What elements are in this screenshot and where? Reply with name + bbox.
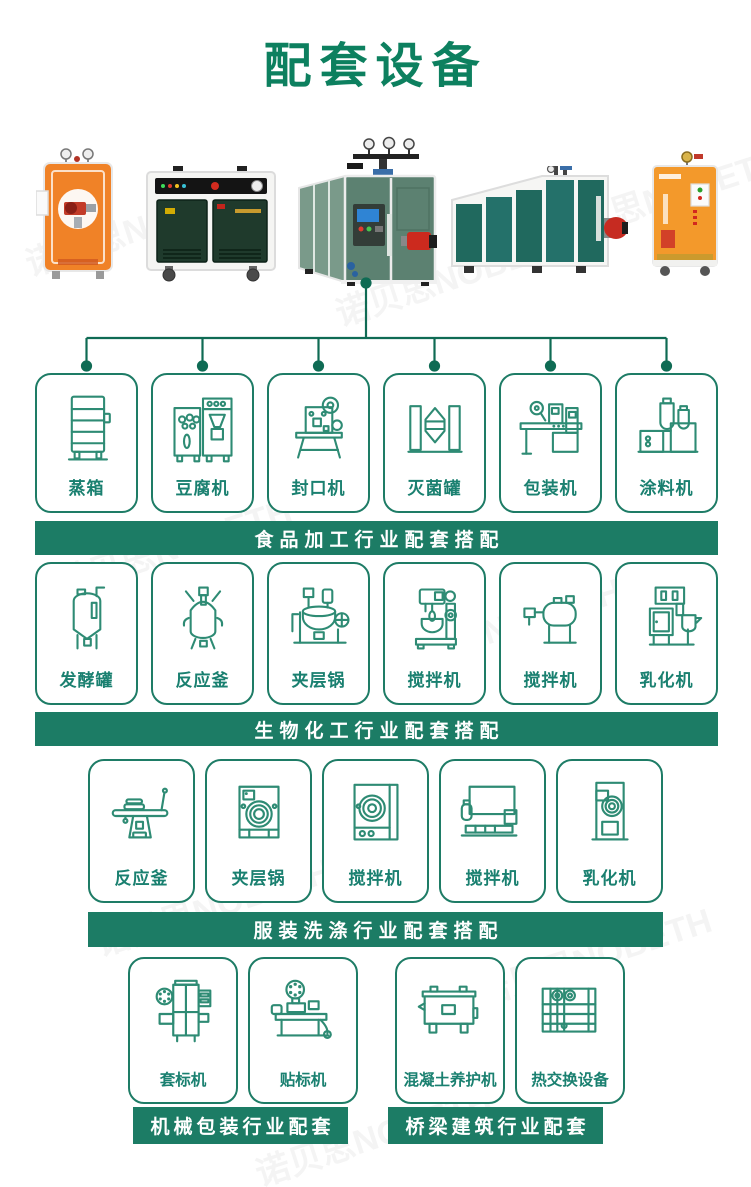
equipment-label: 搅拌机 — [349, 864, 403, 889]
orange-electric-steam-boiler-photo — [647, 150, 723, 276]
equipment-label: 搅拌机 — [408, 666, 462, 691]
equipment-card: 贴标机 — [248, 957, 358, 1104]
equipment-card: 套标机 — [128, 957, 238, 1104]
horizontal-steam-boiler-photo — [446, 166, 628, 282]
horizontal-mixer-icon — [513, 576, 589, 660]
industrial-dryer-icon — [337, 773, 415, 859]
equipment-card: 涂料机 — [615, 373, 718, 513]
equipment-label: 包装机 — [524, 474, 578, 499]
equipment-card: 豆腐机 — [151, 373, 254, 513]
equipment-card: 夹层锅 — [267, 562, 370, 705]
equipment-label: 乳化机 — [583, 864, 637, 889]
equipment-card: 搅拌机 — [322, 759, 429, 903]
equipment-card: 乳化机 — [556, 759, 663, 903]
equipment-card: 搅拌机 — [383, 562, 486, 705]
equipment-label: 蒸箱 — [69, 474, 105, 499]
equipment-label: 混凝土养护机 — [403, 1068, 496, 1090]
dry-cleaning-machine-icon — [454, 773, 532, 859]
equipment-label: 灭菌罐 — [408, 474, 462, 499]
planetary-mixer-icon — [397, 576, 473, 660]
cube-steam-boiler-photo — [291, 136, 443, 286]
heat-exchanger-icon — [531, 971, 609, 1057]
poster-page: 诺贝思NOBETH 诺贝思NOBETH 诺贝思NOBETH 诺贝思NOBETH … — [0, 0, 751, 1187]
sleeve-labeling-machine-icon — [144, 971, 222, 1057]
connector-tree — [0, 276, 751, 376]
labeling-machine-icon — [264, 971, 342, 1057]
emulsifier-icon — [629, 576, 705, 660]
sterilizer-tank-icon — [397, 387, 473, 471]
equipment-card: 热交换设备 — [515, 957, 625, 1104]
vertical-orange-steam-boiler-photo — [36, 147, 120, 281]
equipment-label: 反应釜 — [176, 666, 230, 691]
equipment-label: 发酵罐 — [60, 666, 114, 691]
equipment-label: 涂料机 — [640, 474, 694, 499]
equipment-label: 乳化机 — [640, 666, 694, 691]
fermentation-tank-icon — [49, 576, 125, 660]
equipment-card: 反应釜 — [151, 562, 254, 705]
industrial-washer-icon — [220, 773, 298, 859]
equipment-card: 包装机 — [499, 373, 602, 513]
equipment-card: 搅拌机 — [439, 759, 546, 903]
banner-machinery-packaging: 机械包装行业配套 — [133, 1107, 348, 1144]
equipment-label: 套标机 — [160, 1068, 207, 1090]
equipment-label: 夹层锅 — [292, 666, 346, 691]
equipment-label: 贴标机 — [280, 1068, 327, 1090]
equipment-card: 搅拌机 — [499, 562, 602, 705]
ironing-table-icon — [103, 773, 181, 859]
equipment-label: 搅拌机 — [524, 666, 578, 691]
equipment-card: 反应釜 — [88, 759, 195, 903]
equipment-card: 乳化机 — [615, 562, 718, 705]
banner-garment-laundry: 服装洗涤行业配套搭配 — [88, 912, 663, 947]
tumble-dryer-icon — [571, 773, 649, 859]
concrete-curing-machine-icon — [411, 971, 489, 1057]
equipment-card: 灭菌罐 — [383, 373, 486, 513]
banner-bio-chemical: 生物化工行业配套搭配 — [35, 712, 718, 746]
equipment-card: 封口机 — [267, 373, 370, 513]
green-cabinet-steam-generator-photo — [145, 162, 277, 282]
equipment-label: 豆腐机 — [176, 474, 230, 499]
equipment-label: 热交换设备 — [531, 1068, 609, 1090]
banner-food-processing: 食品加工行业配套搭配 — [35, 521, 718, 555]
jacketed-kettle-icon — [281, 576, 357, 660]
equipment-card: 发酵罐 — [35, 562, 138, 705]
equipment-label: 反应釜 — [115, 864, 169, 889]
equipment-card: 蒸箱 — [35, 373, 138, 513]
sealing-machine-icon — [281, 387, 357, 471]
equipment-card: 夹层锅 — [205, 759, 312, 903]
packing-machine-icon — [513, 387, 589, 471]
equipment-label: 夹层锅 — [232, 864, 286, 889]
reaction-kettle-icon — [165, 576, 241, 660]
equipment-label: 封口机 — [292, 474, 346, 499]
equipment-card: 混凝土养护机 — [395, 957, 505, 1104]
page-title: 配套设备 — [0, 26, 751, 96]
banner-bridge-construction: 桥梁建筑行业配套 — [388, 1107, 603, 1144]
steam-cabinet-icon — [49, 387, 125, 471]
tofu-machine-icon — [165, 387, 241, 471]
equipment-label: 搅拌机 — [466, 864, 520, 889]
coating-machine-icon — [629, 387, 705, 471]
